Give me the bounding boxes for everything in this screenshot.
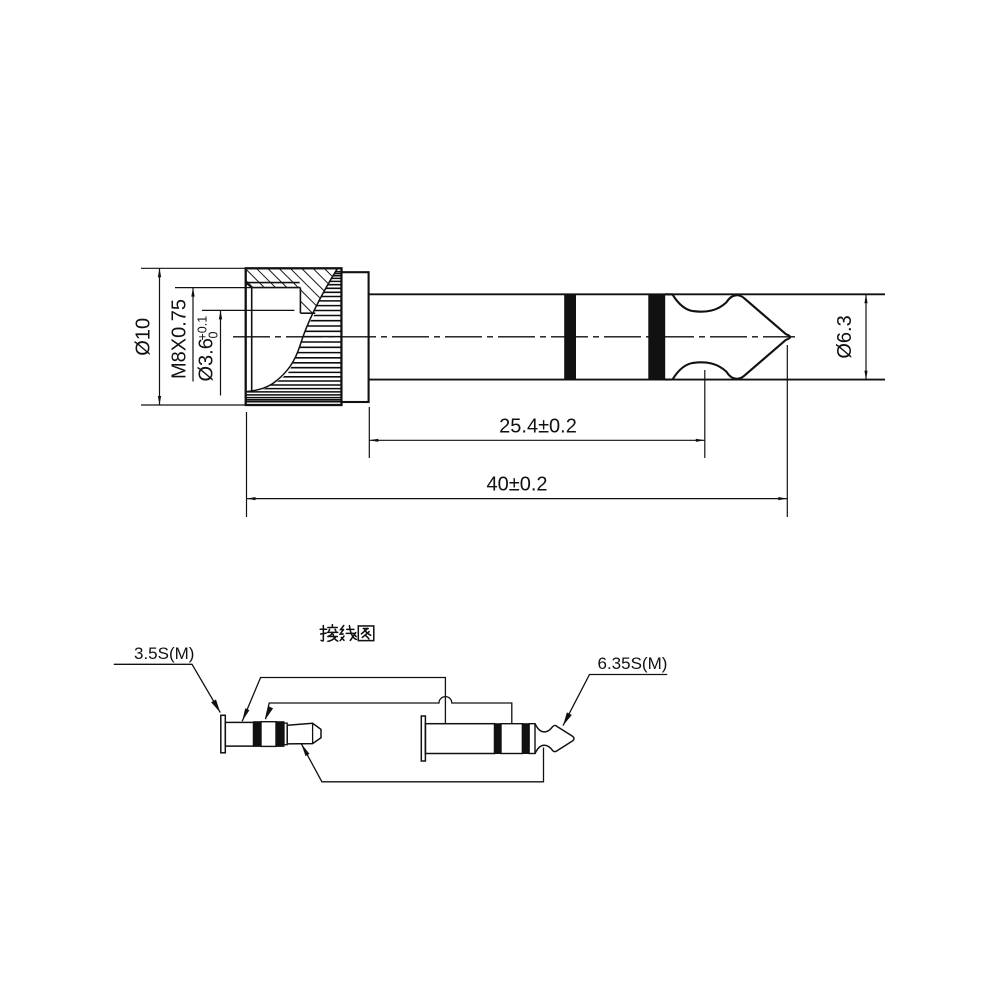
svg-text:25.4±0.2: 25.4±0.2 <box>499 416 577 438</box>
svg-text:M8X0.75: M8X0.75 <box>169 299 191 379</box>
svg-text:40±0.2: 40±0.2 <box>486 474 547 496</box>
svg-text:Ø3.6: Ø3.6 <box>196 338 218 381</box>
svg-text:0: 0 <box>207 332 221 339</box>
svg-text:6.35S(M): 6.35S(M) <box>598 654 668 673</box>
svg-text:3.5S(M): 3.5S(M) <box>134 644 194 663</box>
svg-text:Ø10: Ø10 <box>133 318 155 356</box>
svg-text:Ø6.3: Ø6.3 <box>834 315 856 358</box>
